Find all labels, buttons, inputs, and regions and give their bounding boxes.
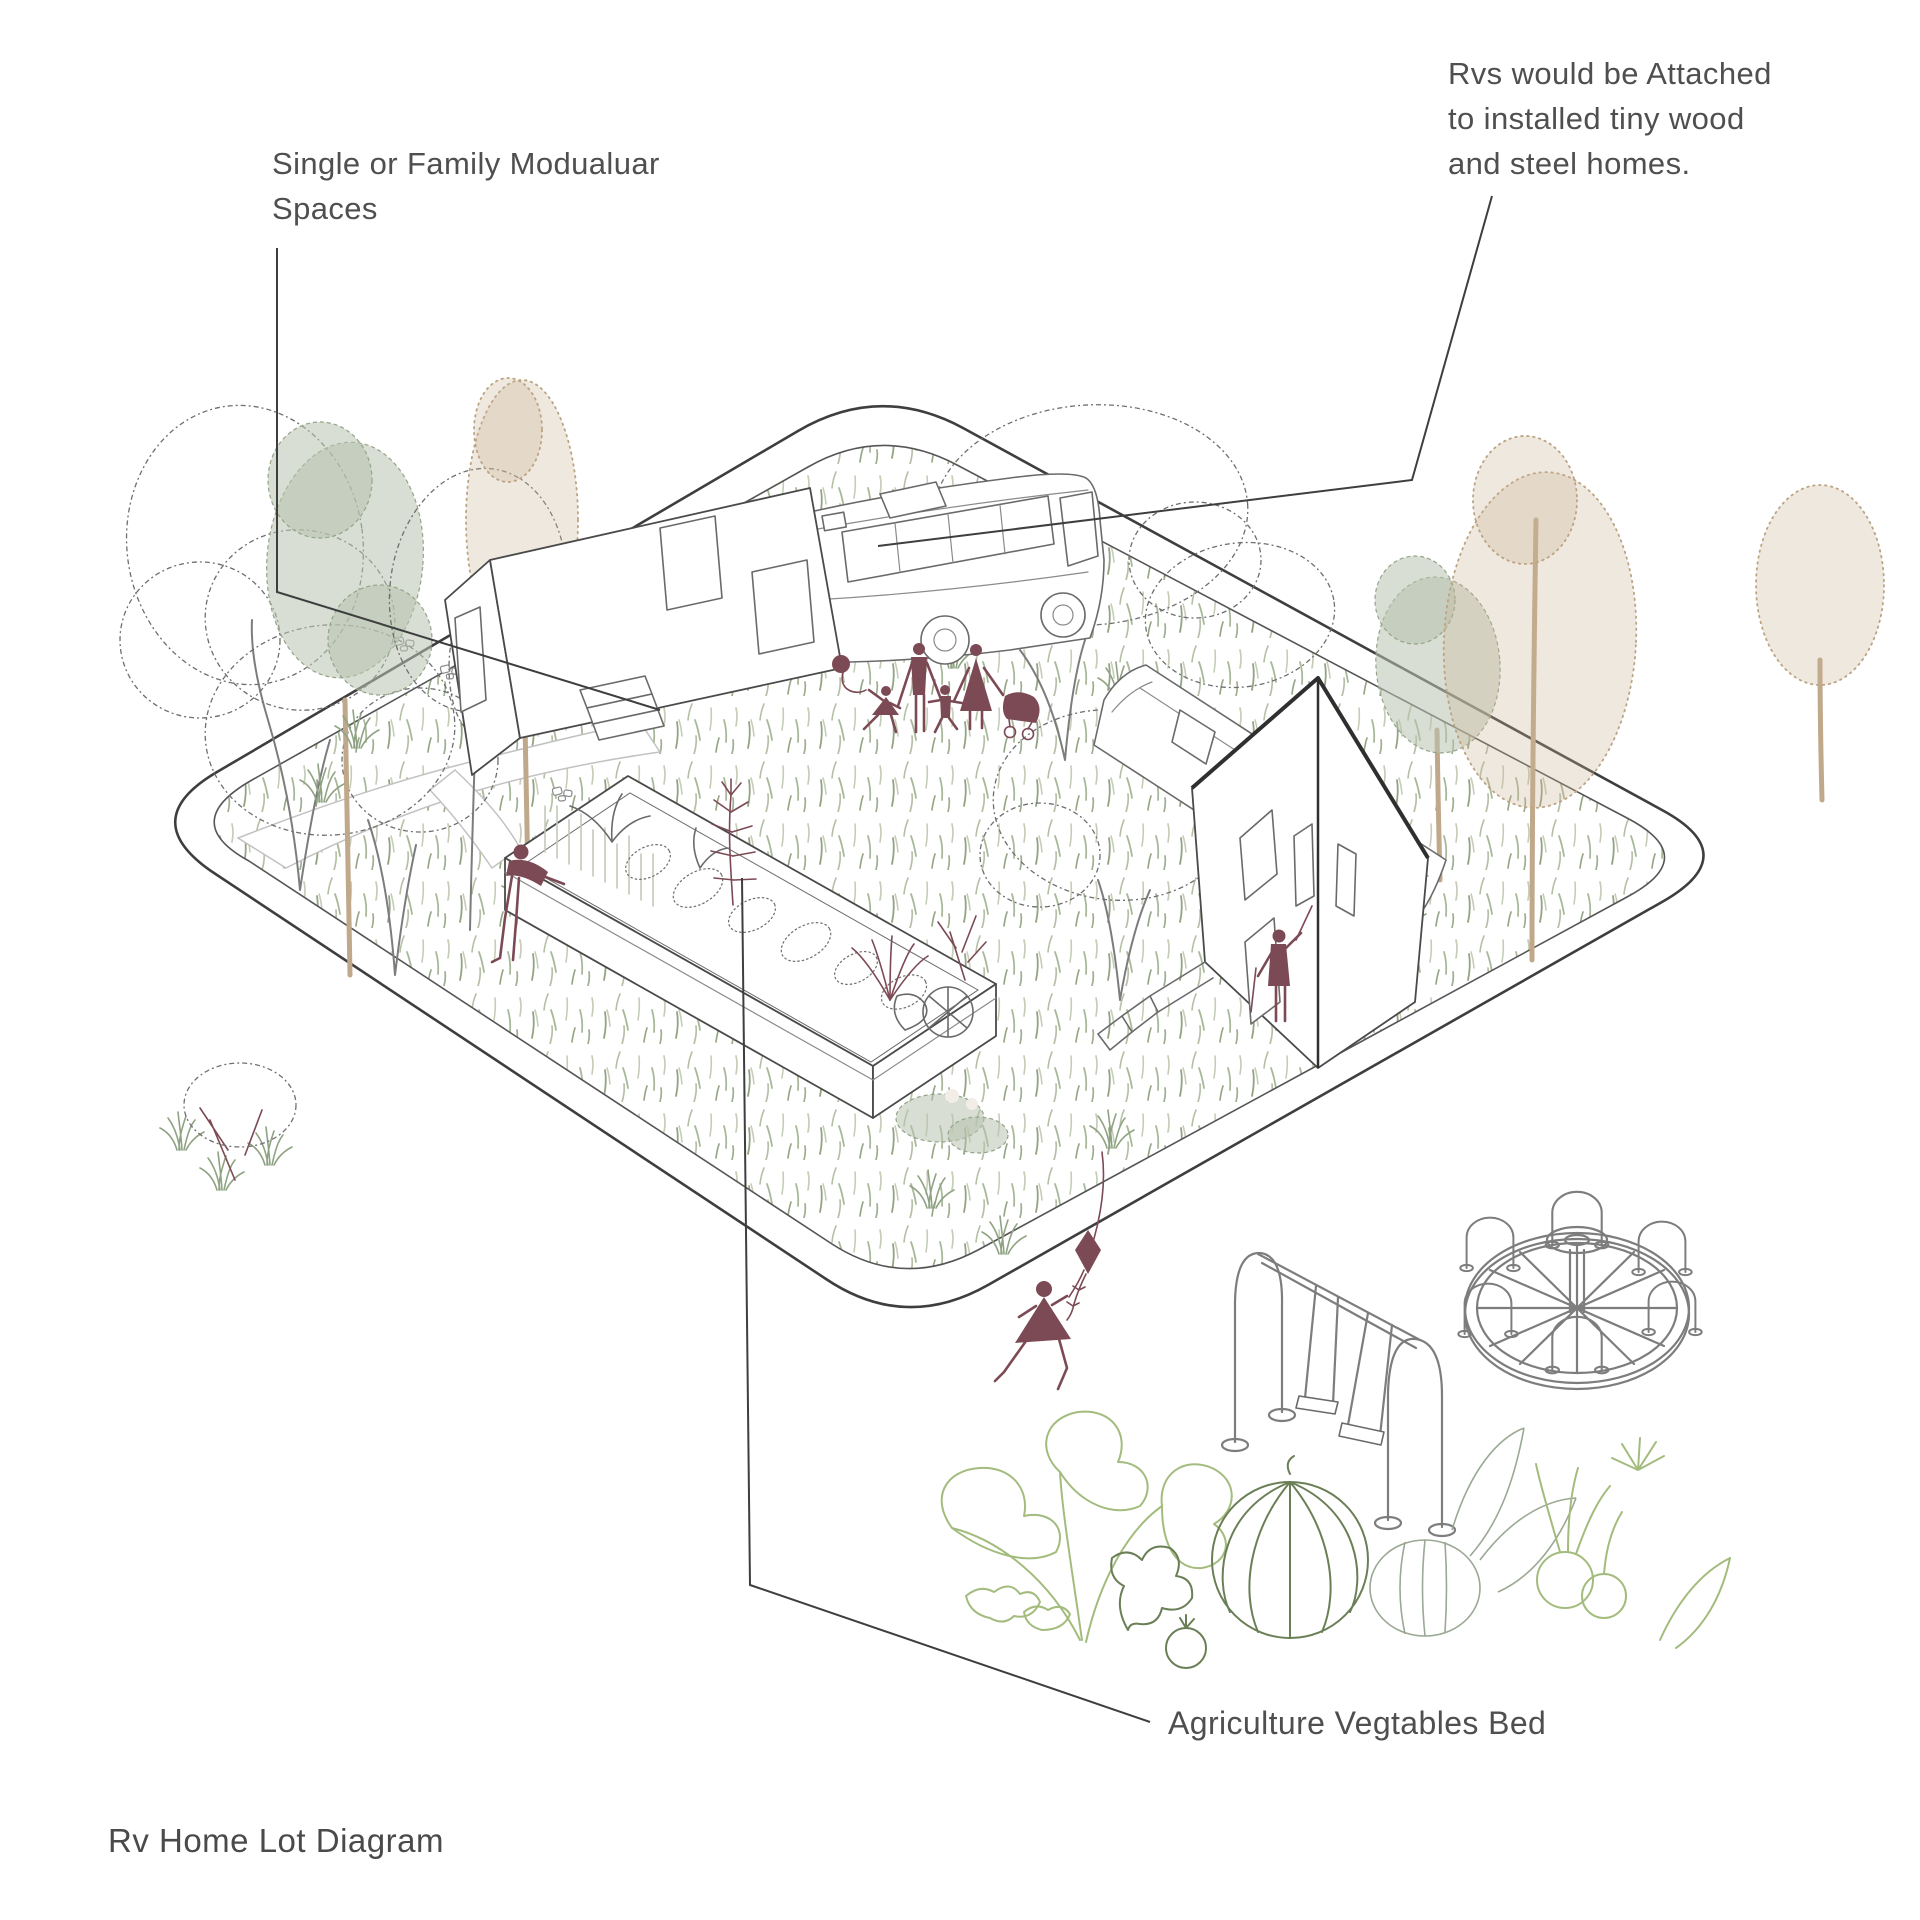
- annotation-line: and steel homes.: [1448, 142, 1772, 187]
- rv-1: [810, 474, 1104, 664]
- annotation-line: Single or Family Modualuar: [272, 142, 660, 187]
- annotation-line: Spaces: [272, 187, 660, 232]
- tree-tan-right: [1756, 485, 1884, 800]
- annotation-vegetable-bed: Agriculture Vegtables Bed: [1168, 1700, 1546, 1746]
- annotation-line: Rvs would be Attached: [1448, 52, 1772, 97]
- diagram-canvas: Single or Family Modualuar Spaces Rvs wo…: [0, 0, 1920, 1920]
- lot-illustration: [0, 0, 1920, 1920]
- page-title: Rv Home Lot Diagram: [108, 1822, 444, 1860]
- annotation-line: Agriculture Vegtables Bed: [1168, 1700, 1546, 1746]
- swing-set-icon: [1222, 1253, 1455, 1536]
- annotation-modular-spaces: Single or Family Modualuar Spaces: [272, 142, 660, 232]
- bottom-left-bush: [160, 1063, 296, 1190]
- annotation-rv-attached: Rvs would be Attached to installed tiny …: [1448, 52, 1772, 187]
- annotation-line: to installed tiny wood: [1448, 97, 1772, 142]
- merry-go-round-icon: [1458, 1192, 1701, 1389]
- vegetable-illustration: [942, 1412, 1730, 1668]
